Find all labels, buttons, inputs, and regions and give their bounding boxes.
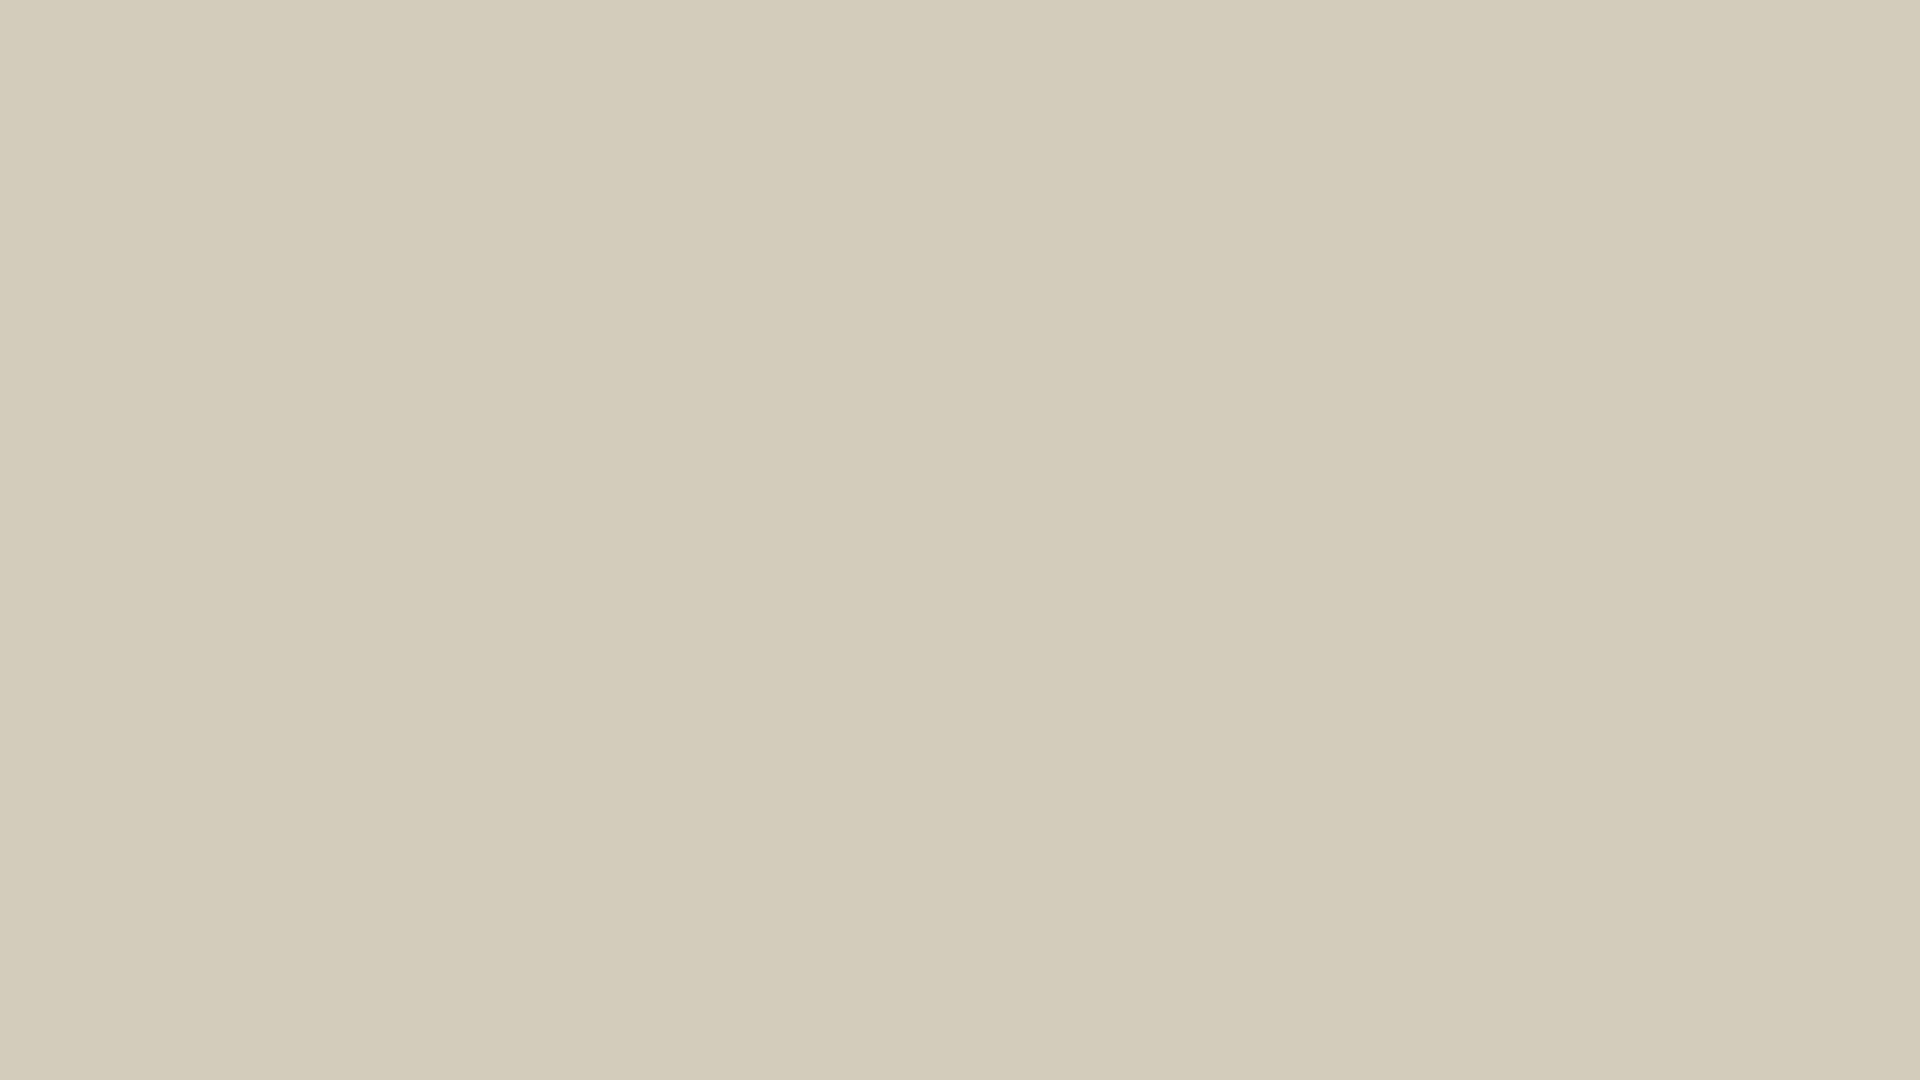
aerial-photo-background (0, 0, 1920, 1080)
aerial-photo-scene (0, 0, 1920, 1080)
